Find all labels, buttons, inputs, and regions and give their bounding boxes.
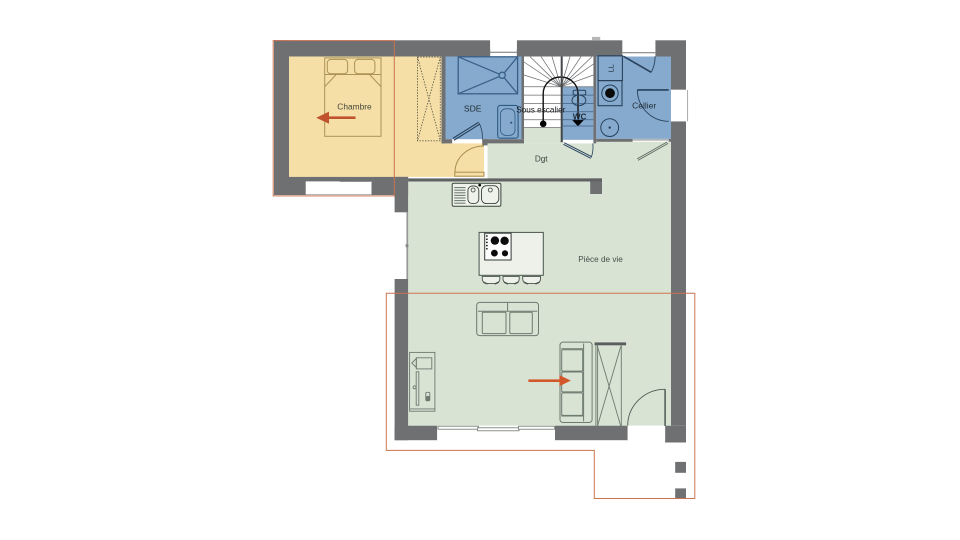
svg-text:Dgt: Dgt bbox=[535, 154, 548, 163]
svg-text:Sous escalier: Sous escalier bbox=[516, 105, 565, 114]
svg-text:Chambre: Chambre bbox=[337, 101, 372, 111]
svg-text:LL: LL bbox=[607, 64, 616, 72]
svg-text:SDE: SDE bbox=[464, 103, 482, 113]
svg-text:Pièce de vie: Pièce de vie bbox=[578, 255, 623, 264]
svg-text:WC: WC bbox=[573, 112, 587, 121]
svg-text:Cellier: Cellier bbox=[632, 101, 656, 111]
